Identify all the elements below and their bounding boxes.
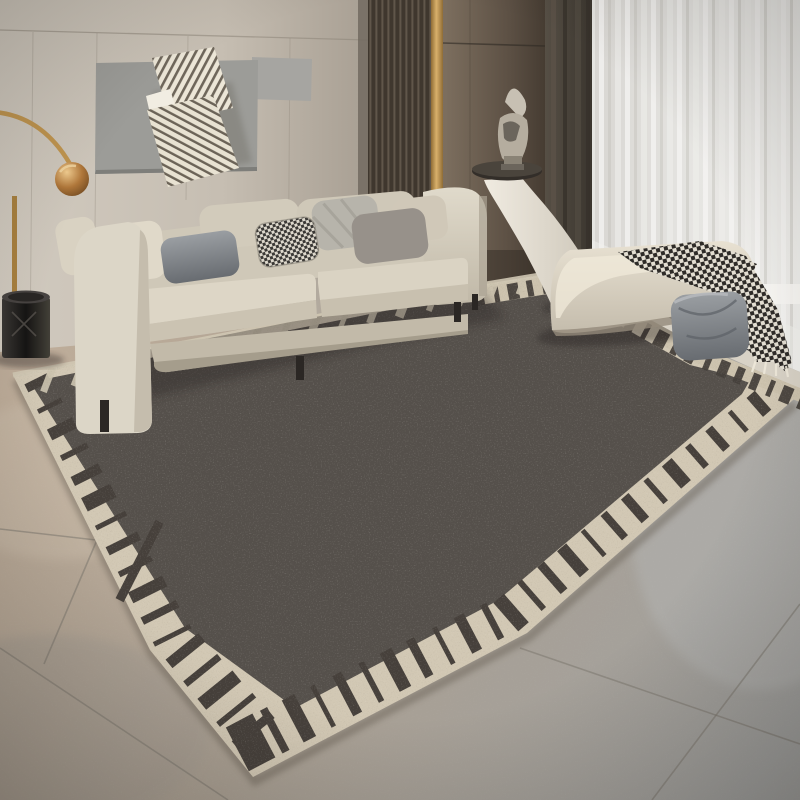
living-room-photo: Modern living room: charcoal area rug wi… xyxy=(0,0,800,800)
vignette xyxy=(0,0,800,800)
scene-canvas: Modern living room: charcoal area rug wi… xyxy=(0,0,800,800)
